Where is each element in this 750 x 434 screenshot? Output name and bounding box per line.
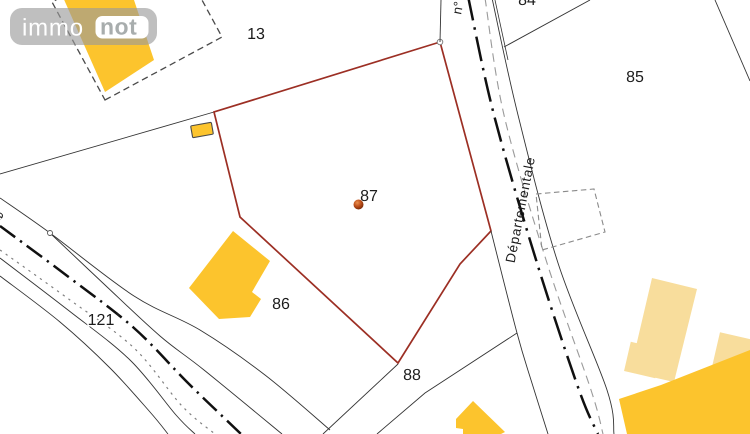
svg-text:84: 84 <box>518 0 536 9</box>
svg-text:121: 121 <box>88 312 115 329</box>
svg-text:87: 87 <box>360 188 378 205</box>
svg-text:86: 86 <box>272 296 290 313</box>
svg-text:13: 13 <box>247 26 265 43</box>
svg-text:not: not <box>100 14 137 40</box>
svg-text:88: 88 <box>403 367 421 384</box>
svg-text:85: 85 <box>626 69 644 86</box>
svg-text:immo: immo <box>22 15 84 42</box>
